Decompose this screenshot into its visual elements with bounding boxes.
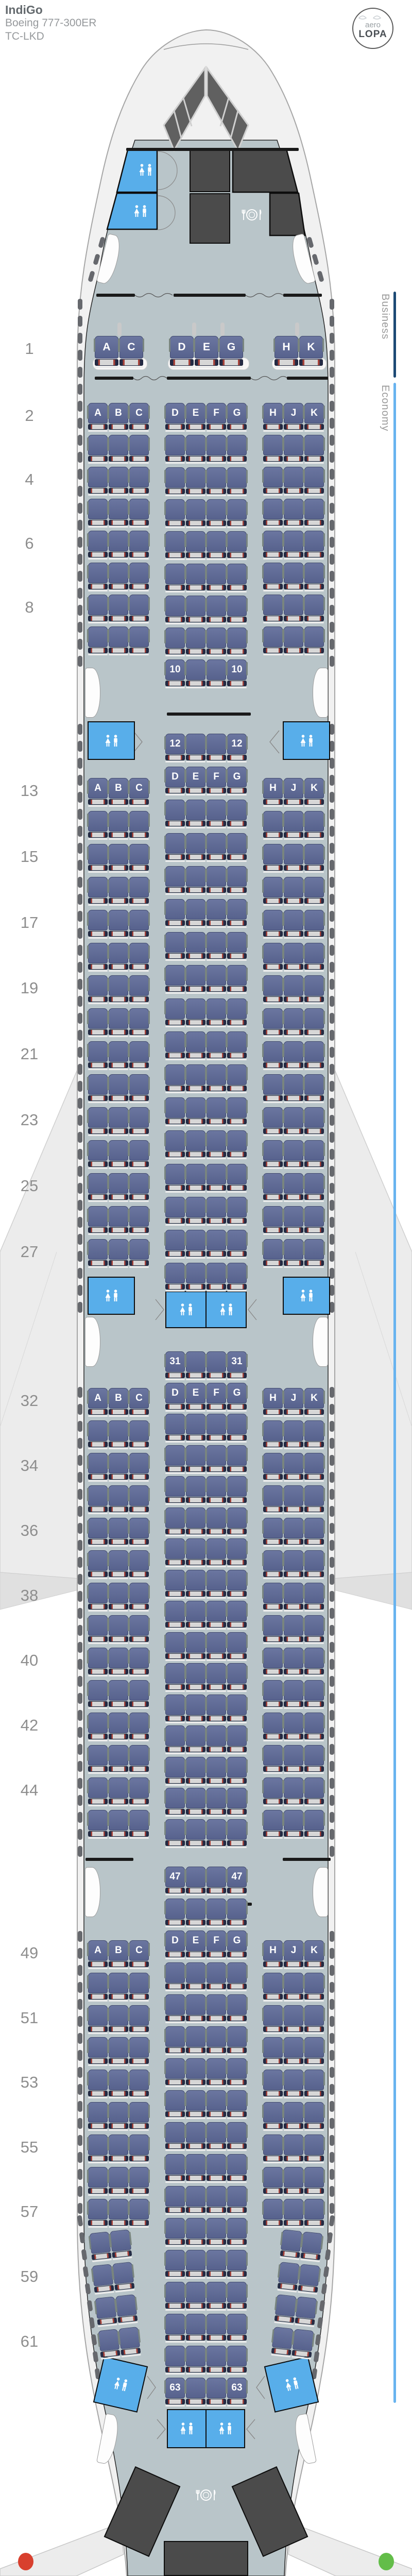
seat-cushion — [207, 1372, 226, 1378]
seat-cushion — [207, 1435, 226, 1440]
seat-cushion — [88, 648, 108, 653]
seat-pan — [284, 970, 303, 972]
cabin-window — [78, 1744, 82, 1755]
economy-seat: C — [129, 778, 149, 807]
seat-cushion — [165, 1086, 185, 1091]
seat-cushion — [109, 1604, 128, 1609]
seat-cushion — [109, 1734, 128, 1739]
seat-back — [165, 1757, 185, 1777]
seat-pan — [109, 1968, 128, 1969]
economy-seat — [207, 2250, 226, 2279]
economy-seat: 12 — [165, 734, 185, 762]
row-number-label: 53 — [13, 2073, 46, 2092]
economy-seat — [129, 467, 149, 496]
cabin-window — [330, 758, 334, 769]
seat-pan — [186, 2117, 205, 2119]
seat-pan — [207, 2181, 226, 2183]
seat-cushion — [227, 520, 247, 526]
partition-bar — [283, 1858, 331, 1861]
seat-pan — [304, 838, 324, 840]
seat-pan — [304, 654, 324, 655]
seat-back — [186, 998, 205, 1019]
cabin-window — [330, 1489, 334, 1500]
seat-cushion — [207, 1020, 226, 1025]
seat-back — [227, 1130, 247, 1151]
seat-cushion — [284, 1474, 303, 1480]
economy-seat — [129, 1173, 149, 1202]
cabin-window — [330, 877, 334, 888]
economy-seat — [165, 467, 185, 496]
cabin-window — [78, 1829, 82, 1840]
seat-back — [88, 1239, 108, 1260]
seat-pan — [165, 2117, 185, 2119]
seat-back — [227, 1994, 247, 2015]
seat-cushion — [304, 832, 324, 838]
seat-cushion — [227, 2239, 247, 2245]
economy-row-center — [165, 2154, 247, 2183]
seat-pan — [165, 794, 185, 795]
economy-row-right — [263, 2134, 324, 2163]
economy-seat — [263, 1008, 283, 1037]
headrest-post — [295, 323, 299, 336]
lavatory-icons — [135, 164, 156, 176]
economy-row-left — [88, 2167, 149, 2196]
economy-seat — [263, 1107, 283, 1136]
economy-seat — [186, 2314, 205, 2343]
seat-pan — [109, 1233, 128, 1235]
economy-seat — [304, 2199, 324, 2228]
economy-seat — [304, 1680, 324, 1709]
seat-pan — [263, 1545, 283, 1547]
seat-pan — [227, 1026, 247, 1027]
seat-cushion — [129, 1636, 149, 1642]
seat-cushion — [129, 1409, 149, 1415]
economy-seat: 31 — [227, 1351, 247, 1380]
woman-figure-icon — [112, 2377, 122, 2390]
seat-back — [227, 564, 247, 584]
seat-cushion — [263, 1128, 283, 1134]
seat-back: F — [207, 403, 226, 423]
seat-back — [263, 1973, 283, 1993]
economy-seat — [165, 1632, 185, 1661]
seat-pan — [109, 1675, 128, 1676]
economy-seat: 63 — [227, 2378, 247, 2406]
cabin-window — [330, 1710, 334, 1721]
seat-cushion — [227, 1435, 247, 1440]
seat-pan — [263, 2064, 283, 2066]
seat-pan — [304, 2129, 324, 2131]
seat-cushion — [284, 996, 303, 1002]
row-number-label: 59 — [13, 2267, 46, 2286]
economy-seat — [263, 1648, 283, 1676]
man-figure-icon — [142, 205, 147, 217]
seat-cushion — [186, 1118, 205, 1124]
cabin-window — [78, 1387, 82, 1398]
seat-pan — [227, 827, 247, 828]
cabin-window — [330, 554, 334, 565]
cabin-window — [330, 1472, 334, 1483]
seat-cushion — [263, 488, 283, 494]
seat-back — [207, 1230, 226, 1250]
cabin-window — [330, 724, 334, 735]
economy-row-center — [165, 1725, 247, 1754]
seat-cushion — [109, 1766, 128, 1772]
economy-row-left: ABC — [88, 1388, 149, 1417]
seat-cushion — [304, 488, 324, 494]
economy-row-left — [88, 531, 149, 560]
seat-back: G — [227, 1930, 247, 1951]
seat-pan — [263, 904, 283, 906]
seat-back — [88, 844, 108, 865]
seat-pan — [186, 1535, 205, 1536]
economy-seat — [263, 1041, 283, 1070]
economy-row-left — [88, 1008, 149, 1037]
seat-pan — [207, 1815, 226, 1817]
seat-pan — [304, 622, 324, 623]
economy-row-center — [165, 1445, 247, 1474]
seat-back — [281, 2229, 302, 2252]
cabin-window — [330, 1285, 334, 1296]
cabin-window — [330, 1982, 334, 1993]
seat-back — [88, 1420, 108, 1441]
economy-seat — [227, 800, 247, 828]
cabin-window — [330, 1846, 334, 1857]
seat-back — [207, 1788, 226, 1808]
seat-cushion — [263, 1409, 283, 1415]
economy-seat — [165, 1445, 185, 1474]
cabin-window — [78, 1251, 82, 1262]
economy-seat — [186, 1962, 205, 1991]
economy-seat — [227, 1476, 247, 1505]
seat-back — [263, 1173, 283, 1194]
seat-cushion — [186, 585, 205, 590]
cabin-window — [330, 1081, 334, 1092]
seat-cushion — [207, 2079, 226, 2085]
economy-seat — [109, 943, 128, 972]
seat-pan — [165, 1566, 185, 1567]
seat-pan — [304, 1772, 324, 1774]
seat-cushion — [227, 1118, 247, 1124]
seat-pan — [207, 1290, 226, 1292]
galley-dining-icon — [194, 2486, 218, 2504]
seat-cushion — [263, 1095, 283, 1101]
economy-seat — [109, 1648, 128, 1676]
seat-pan — [207, 1784, 226, 1786]
seat-back — [207, 2314, 226, 2334]
economy-seat — [89, 2231, 112, 2262]
cabin-window — [78, 1710, 82, 1721]
seat-pan — [304, 1480, 324, 1482]
partition-bar — [167, 713, 251, 716]
seat-pan — [186, 1990, 205, 1991]
cabin-window — [78, 996, 82, 1007]
seat-pan — [109, 838, 128, 840]
seat-pan — [165, 2277, 185, 2279]
seat-pan — [207, 1472, 226, 1474]
seat-cushion — [284, 1604, 303, 1609]
cabin-window — [78, 1081, 82, 1092]
seat-back — [263, 1615, 283, 1636]
economy-seat — [88, 1550, 108, 1579]
cabin-window — [78, 537, 82, 548]
economy-seat — [263, 595, 283, 623]
seat-pan — [88, 1134, 108, 1136]
seat-pan — [129, 1545, 149, 1547]
economy-seat — [284, 1173, 303, 1202]
economy-seat — [263, 910, 283, 939]
economy-seat — [284, 877, 303, 906]
seat-cushion — [304, 2026, 324, 2032]
seat-back — [109, 2102, 128, 2123]
seat-back — [109, 1615, 128, 1636]
seat-pan — [284, 2032, 303, 2034]
seat-pan — [263, 1167, 283, 1169]
economy-seat — [186, 932, 205, 961]
economy-row-right — [263, 563, 324, 591]
economy-seat — [129, 975, 149, 1004]
seat-pan — [186, 623, 205, 624]
seat-back — [284, 2134, 303, 2155]
seat-pan — [129, 2226, 149, 2228]
seat-back — [207, 1538, 226, 1559]
seat-pan — [284, 1101, 303, 1103]
seat-cushion — [129, 1161, 149, 1167]
seat-back — [165, 1725, 185, 1746]
seat-pan — [88, 2162, 108, 2163]
economy-seat — [227, 1230, 247, 1259]
seat-back — [304, 1107, 324, 1128]
economy-seat: G — [227, 1930, 247, 1959]
economy-row-right — [263, 1485, 324, 1514]
seat-cushion — [186, 1747, 205, 1752]
seat-back: K — [304, 1388, 324, 1409]
seat-back: F — [207, 1930, 226, 1951]
economy-seat — [88, 975, 108, 1004]
economy-seat: G — [227, 1383, 247, 1412]
economy-seat — [165, 899, 185, 928]
seat-pan — [129, 1610, 149, 1612]
economy-seat — [207, 2218, 226, 2247]
seat-back — [304, 1745, 324, 1766]
seat-pan — [165, 959, 185, 961]
seat-back — [304, 1485, 324, 1506]
seat-cushion — [304, 1409, 324, 1415]
seat-pan — [304, 2162, 324, 2163]
seat-back — [304, 1206, 324, 1227]
seat-cushion — [186, 1151, 205, 1157]
seat-back — [88, 563, 108, 583]
seat-pan — [263, 2226, 283, 2228]
cabin-window — [78, 1472, 82, 1483]
cabin-window — [78, 1608, 82, 1619]
economy-seat — [186, 2058, 205, 2087]
seat-pan — [284, 1837, 303, 1839]
economy-row-right — [263, 811, 324, 840]
exit-door — [85, 1317, 100, 1367]
economy-row-left — [88, 1810, 149, 1839]
seat-pan — [129, 1740, 149, 1741]
seat-back — [284, 1973, 303, 1993]
seat-back — [186, 2058, 205, 2079]
cabin-window — [330, 1625, 334, 1636]
plate-fork-knife-icon — [240, 206, 264, 224]
economy-seat — [207, 435, 226, 464]
seat-pan — [88, 937, 108, 939]
seat-back — [129, 531, 149, 551]
economy-seat — [186, 1197, 205, 1226]
seat-cushion — [186, 1888, 205, 1893]
seat-back — [284, 1777, 303, 1798]
lavatory — [283, 721, 330, 760]
seat-pan — [88, 1069, 108, 1070]
seat-cushion — [165, 2111, 185, 2117]
seat-cushion — [165, 1952, 185, 1957]
seat-pan — [263, 1266, 283, 1268]
seat-cushion — [284, 2123, 303, 2129]
seat-back: J — [284, 1388, 303, 1409]
seat-back — [88, 2167, 108, 2188]
economy-seat — [227, 2090, 247, 2119]
economy-seat — [304, 1420, 324, 1449]
cabin-window — [78, 1013, 82, 1024]
seat-back — [186, 531, 205, 552]
seat-cushion — [304, 1831, 324, 1837]
economy-seat — [227, 1694, 247, 1723]
seat-cushion — [165, 1560, 185, 1565]
economy-seat — [165, 2282, 185, 2311]
economy-row-left — [92, 2262, 135, 2295]
economy-seat — [263, 531, 283, 560]
seat-back — [263, 2102, 283, 2123]
seat-pan — [129, 430, 149, 432]
economy-seat — [129, 2199, 149, 2228]
seat-back — [129, 943, 149, 963]
cabin-window — [78, 1795, 82, 1806]
economy-row-left — [88, 1140, 149, 1169]
cabin-window — [330, 1115, 334, 1126]
seat-pan — [207, 2341, 226, 2343]
seat-back — [304, 467, 324, 487]
economy-seat — [207, 1476, 226, 1505]
seat-back — [207, 800, 226, 820]
seat-pan — [263, 1968, 283, 1969]
economy-row-left — [88, 467, 149, 496]
seat-cushion — [304, 1539, 324, 1545]
seat-back — [304, 2102, 324, 2123]
seat-back — [186, 965, 205, 986]
row-number-label: 38 — [13, 1586, 46, 1605]
seat-back — [304, 1583, 324, 1603]
economy-seat — [165, 1476, 185, 1505]
seat-pan — [304, 2032, 324, 2034]
seat-pan — [95, 366, 118, 368]
economy-seat — [186, 1538, 205, 1567]
cabin-window — [78, 2084, 82, 2095]
seat-pan — [227, 430, 247, 432]
seat-back — [304, 2005, 324, 2026]
seat-back — [186, 1230, 205, 1250]
seat-pan — [88, 970, 108, 972]
economy-seat — [227, 1097, 247, 1126]
cabin-window — [78, 1846, 82, 1857]
seat-back — [186, 1867, 205, 1887]
seat-back — [109, 2005, 128, 2026]
economy-seat — [165, 2026, 185, 2055]
economy-seat — [88, 877, 108, 906]
seat-cushion — [304, 865, 324, 871]
seat-cushion — [207, 755, 226, 760]
seat-back — [284, 2102, 303, 2123]
economy-seat — [227, 1788, 247, 1817]
economy-seat — [165, 932, 185, 961]
seat-cushion — [88, 2091, 108, 2096]
seat-back — [284, 1550, 303, 1571]
economy-row-left — [88, 844, 149, 873]
seat-pan — [284, 2064, 303, 2066]
seat-cushion — [109, 2123, 128, 2129]
seat-cushion — [109, 1474, 128, 1480]
starboard-nav-light — [379, 2553, 394, 2570]
seat-back — [263, 595, 283, 615]
economy-seat — [165, 2058, 185, 2087]
economy-seat — [109, 435, 128, 464]
seat-cushion — [207, 920, 226, 926]
cabin-window — [78, 877, 82, 888]
seat-back — [109, 2070, 128, 2090]
seat-cushion — [227, 488, 247, 494]
seat-cushion — [129, 1227, 149, 1233]
economy-seat — [129, 1713, 149, 1741]
cabin-window — [78, 792, 82, 803]
seat-back — [263, 1074, 283, 1095]
seat-back — [165, 1663, 185, 1684]
economy-seat — [284, 1583, 303, 1612]
seat-cushion — [88, 1734, 108, 1739]
economy-seat — [304, 499, 324, 528]
seat-cushion — [88, 424, 108, 430]
seat-cushion — [207, 2207, 226, 2213]
seat-pan — [227, 1815, 247, 1817]
seat-cushion — [186, 1497, 205, 1503]
business-seat: A — [95, 336, 118, 368]
economy-seat — [304, 2167, 324, 2196]
seat-cushion — [88, 1766, 108, 1772]
cabin-window — [78, 452, 82, 463]
seat-back — [88, 1973, 108, 1993]
seat-pan — [109, 1805, 128, 1806]
economy-row-center — [165, 1097, 247, 1126]
economy-row-center — [165, 1663, 247, 1692]
economy-seat: E — [186, 767, 205, 795]
seat-pan — [304, 2194, 324, 2196]
seat-pan — [227, 1535, 247, 1536]
economy-seat — [186, 2154, 205, 2183]
economy-row-center: 3131 — [165, 1351, 247, 1380]
partition-bar — [126, 148, 299, 151]
cabin-window — [78, 1506, 82, 1517]
seat-cushion — [304, 1161, 324, 1167]
economy-row-right — [263, 626, 324, 655]
seat-cushion — [207, 1809, 226, 1815]
seat-cushion — [165, 2015, 185, 2021]
economy-row-right — [263, 1810, 324, 1839]
seat-back — [263, 910, 283, 930]
economy-seat — [227, 2186, 247, 2215]
seat-back — [165, 1507, 185, 1528]
seat-back — [284, 877, 303, 897]
seat-cushion — [227, 788, 247, 793]
seat-pan — [165, 1990, 185, 1991]
